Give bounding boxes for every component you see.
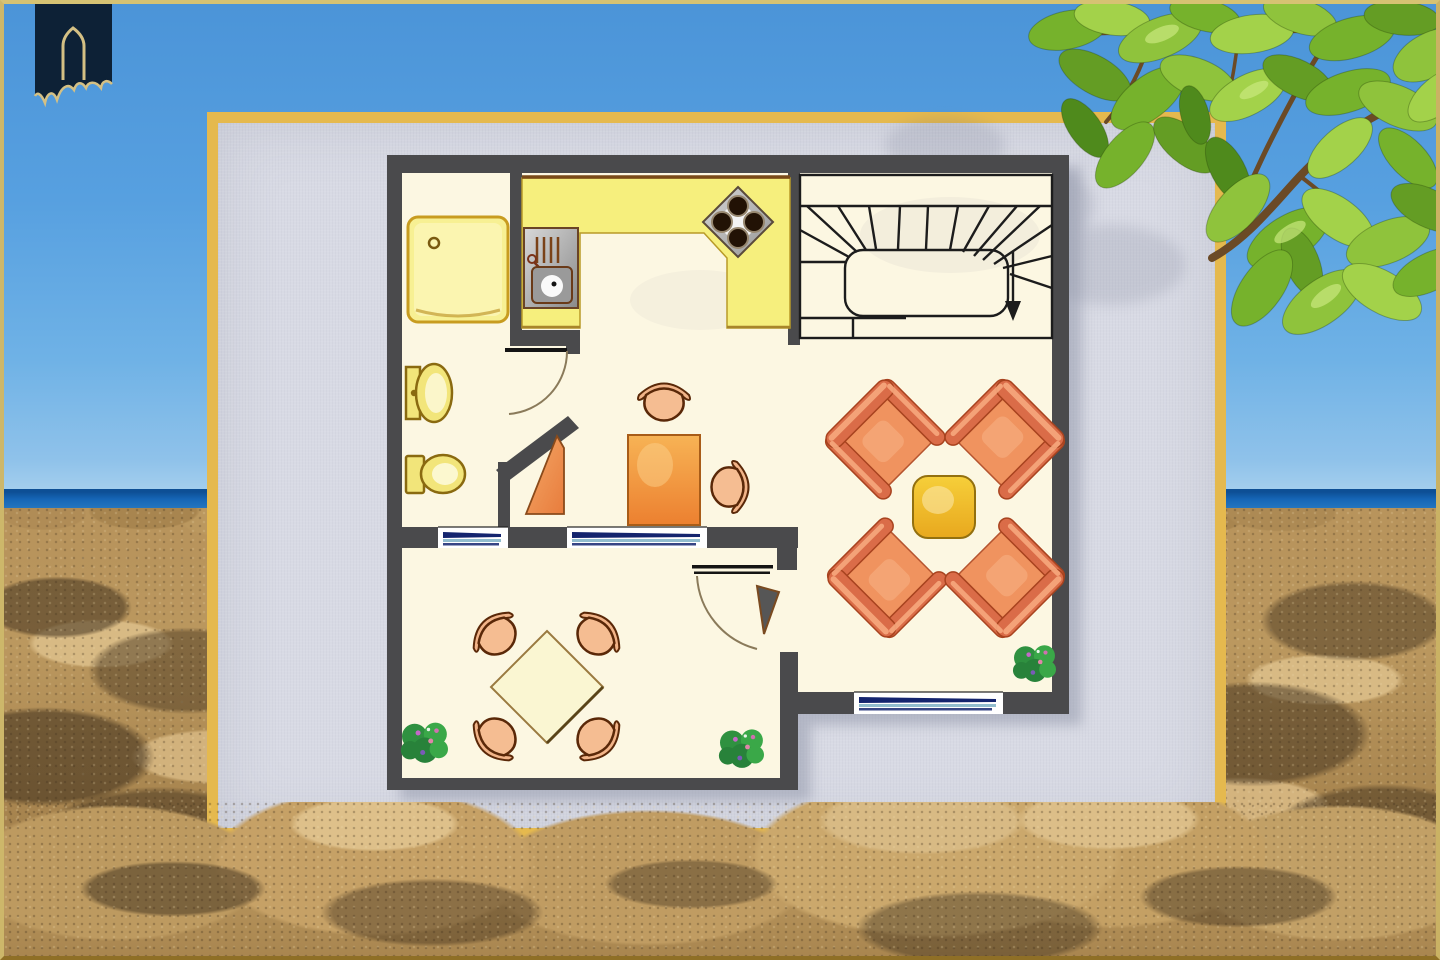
floor-plan-card	[207, 112, 1226, 839]
beach-floorplan-scene	[0, 0, 1440, 960]
estate-logo	[35, 0, 112, 103]
arch-house-icon	[63, 28, 84, 80]
